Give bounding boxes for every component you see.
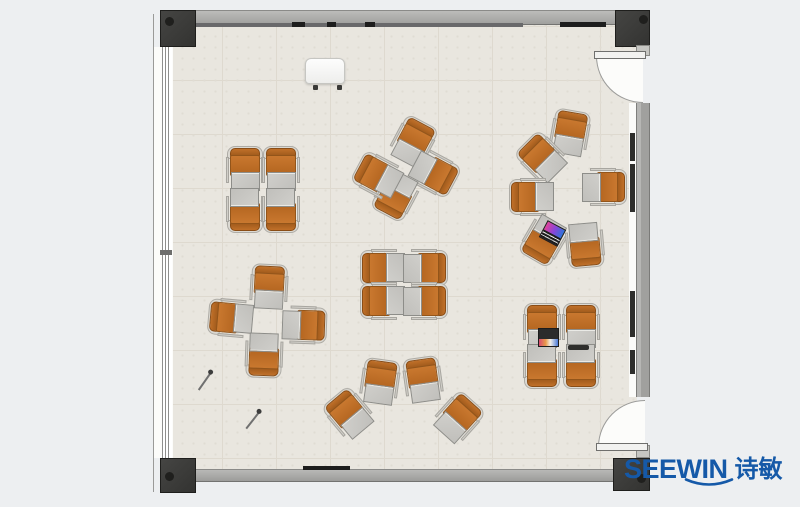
chair-armrest-left xyxy=(558,352,561,378)
chair-armrest-right xyxy=(411,317,437,320)
chair-armrest-right xyxy=(226,196,229,222)
chair-desk-unit[interactable] xyxy=(262,146,300,192)
tablet-desk xyxy=(403,254,422,283)
chair-desk-unit[interactable] xyxy=(509,178,555,216)
tablet-desk xyxy=(535,182,554,211)
chair-desk-unit[interactable] xyxy=(262,187,300,233)
chair-armrest-right xyxy=(520,178,546,181)
window-mullion-joint xyxy=(160,250,172,255)
chair-armrest-right xyxy=(597,314,600,340)
column xyxy=(160,458,196,493)
wall-rail xyxy=(196,23,523,27)
wall-mounted-rail-mark xyxy=(292,22,305,27)
chair-armrest-left xyxy=(291,306,317,310)
wall-mounted-board xyxy=(630,291,635,337)
chair-armrest-left xyxy=(562,314,565,340)
chair-armrest-left xyxy=(226,157,229,183)
tablet-desk xyxy=(281,310,301,340)
wall-bottom xyxy=(196,469,616,482)
chair-armrest-right xyxy=(523,352,526,378)
chair-desk-unit[interactable] xyxy=(581,168,627,206)
tablet-desk xyxy=(230,188,259,207)
chair-armrest-right xyxy=(590,203,616,206)
chair-desk-unit[interactable] xyxy=(360,282,406,320)
flipchart-foot xyxy=(337,85,342,90)
tablet-desk xyxy=(568,222,599,243)
tablet-desk xyxy=(233,303,254,334)
tablet-desk xyxy=(266,188,295,207)
tablet-desk xyxy=(582,173,601,202)
wall-right xyxy=(636,103,650,397)
chair-desk-unit[interactable] xyxy=(226,187,264,233)
tablet-desk xyxy=(410,381,441,404)
laptop[interactable] xyxy=(538,328,559,347)
wall-mounted-rail-mark xyxy=(303,466,350,470)
tablet-desk xyxy=(403,287,422,316)
brand-cjk: 诗敏 xyxy=(735,457,783,481)
chair-armrest-right xyxy=(371,249,397,252)
chair-desk-unit[interactable] xyxy=(226,146,264,192)
chair-armrest-left xyxy=(262,157,265,183)
door-leaf xyxy=(594,51,646,59)
tablet[interactable] xyxy=(568,345,589,350)
chair-armrest-left xyxy=(590,168,616,171)
wall-mounted-board xyxy=(630,133,635,161)
chair-armrest-left xyxy=(523,314,526,340)
flipchart-foot xyxy=(313,85,318,90)
chair-desk-unit[interactable] xyxy=(280,305,327,345)
chair-armrest-right xyxy=(562,352,565,378)
chair-armrest-left xyxy=(411,282,437,285)
floor-plan-canvas: SEEWIN 诗敏 xyxy=(0,0,800,507)
column xyxy=(160,10,196,47)
door-leaf xyxy=(596,443,648,451)
chair-desk-unit[interactable] xyxy=(523,343,561,389)
brand-logo: SEEWIN 诗敏 xyxy=(624,452,783,486)
column-bolt xyxy=(639,15,648,24)
column xyxy=(615,10,650,47)
chair-armrest-right xyxy=(262,196,265,222)
logo-swoosh-icon xyxy=(684,478,734,488)
chair-armrest-right xyxy=(371,282,397,285)
wall-mounted-rail-mark xyxy=(365,22,375,27)
tablet-desk xyxy=(254,289,284,309)
chair-desk-unit[interactable] xyxy=(401,355,445,406)
chair-desk-unit[interactable] xyxy=(564,220,606,269)
chair-armrest-left xyxy=(371,317,397,320)
chair-armrest-right xyxy=(297,157,300,183)
chair-armrest-left xyxy=(411,249,437,252)
chair-desk-unit[interactable] xyxy=(358,357,402,408)
wall-mounted-rail-mark xyxy=(560,22,606,27)
wall-mounted-rail-mark xyxy=(327,22,336,27)
chair-armrest-left xyxy=(297,196,300,222)
column-bolt xyxy=(165,472,174,481)
tablet-desk xyxy=(363,383,394,406)
chair-desk-unit[interactable] xyxy=(402,282,448,320)
wall-mounted-board xyxy=(630,350,635,374)
chair-desk-unit[interactable] xyxy=(244,331,284,378)
tablet-desk xyxy=(249,332,279,352)
flipchart-board[interactable] xyxy=(305,58,345,84)
column-bolt xyxy=(165,17,174,26)
chair-armrest-left xyxy=(597,352,600,378)
wall-mounted-board xyxy=(630,164,635,212)
